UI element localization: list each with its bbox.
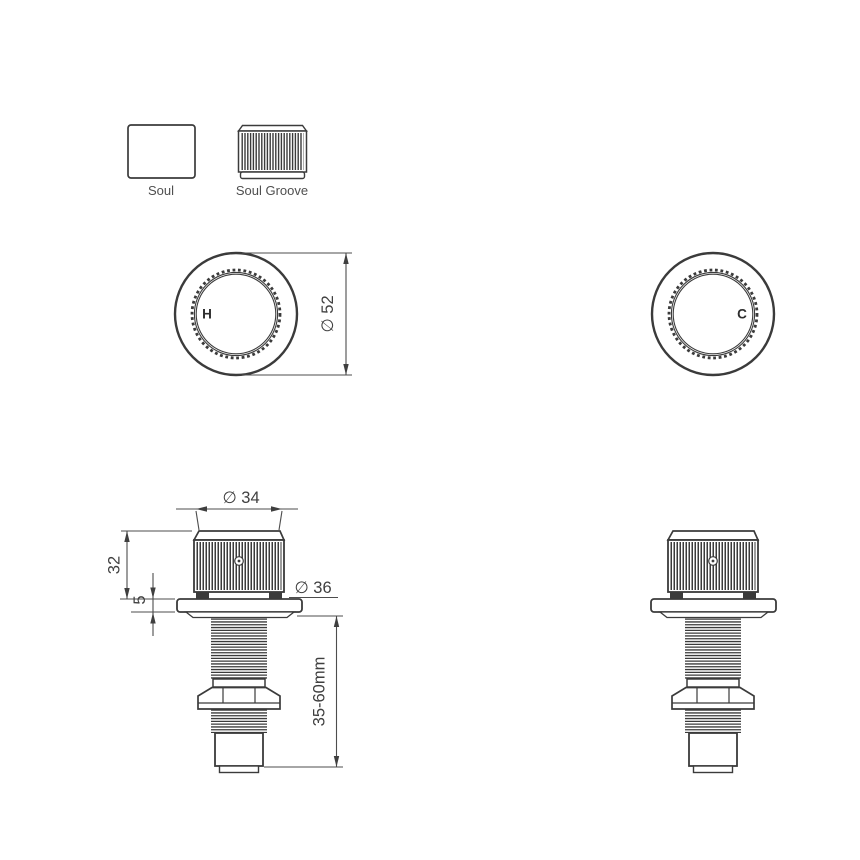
- hot-valve-front-view: [177, 531, 302, 773]
- legend-soul-label: Soul: [148, 183, 174, 198]
- top-view-cold-knob: C: [652, 253, 774, 375]
- legend: Soul Soul Groove: [128, 125, 308, 198]
- cold-valve-front-view: [651, 531, 776, 773]
- dimension-flange-thickness-5: 5: [131, 573, 175, 636]
- legend-soul-groove-label: Soul Groove: [236, 183, 308, 198]
- hot-indicator-label: H: [202, 307, 212, 322]
- legend-soul-swatch: [128, 125, 195, 178]
- dimension-knob-diameter-34: ∅ 34: [176, 489, 298, 530]
- mounting-range-value: 35-60mm: [311, 657, 329, 727]
- top-view-hot-knob: H: [175, 253, 297, 375]
- flange-diameter-value: ∅ 36: [294, 579, 331, 597]
- dimension-knob-height-32: 32: [106, 531, 193, 599]
- dimension-mounting-range: 35-60mm: [264, 616, 343, 767]
- legend-soul-groove-swatch: [239, 126, 307, 179]
- technical-drawing-sheet: Soul Soul Groove H C ∅ 52 ∅ 34 32: [0, 0, 860, 860]
- dimension-flange-diameter-36: ∅ 36: [289, 579, 338, 598]
- cold-indicator-label: C: [737, 307, 747, 322]
- tap-valve-drawing: Soul Soul Groove H C ∅ 52 ∅ 34 32: [0, 0, 860, 860]
- knob-height-value: 32: [106, 556, 124, 574]
- flange-thickness-value: 5: [131, 595, 149, 604]
- outer-diameter-value: ∅ 52: [319, 295, 337, 332]
- knob-diameter-value: ∅ 34: [222, 489, 259, 507]
